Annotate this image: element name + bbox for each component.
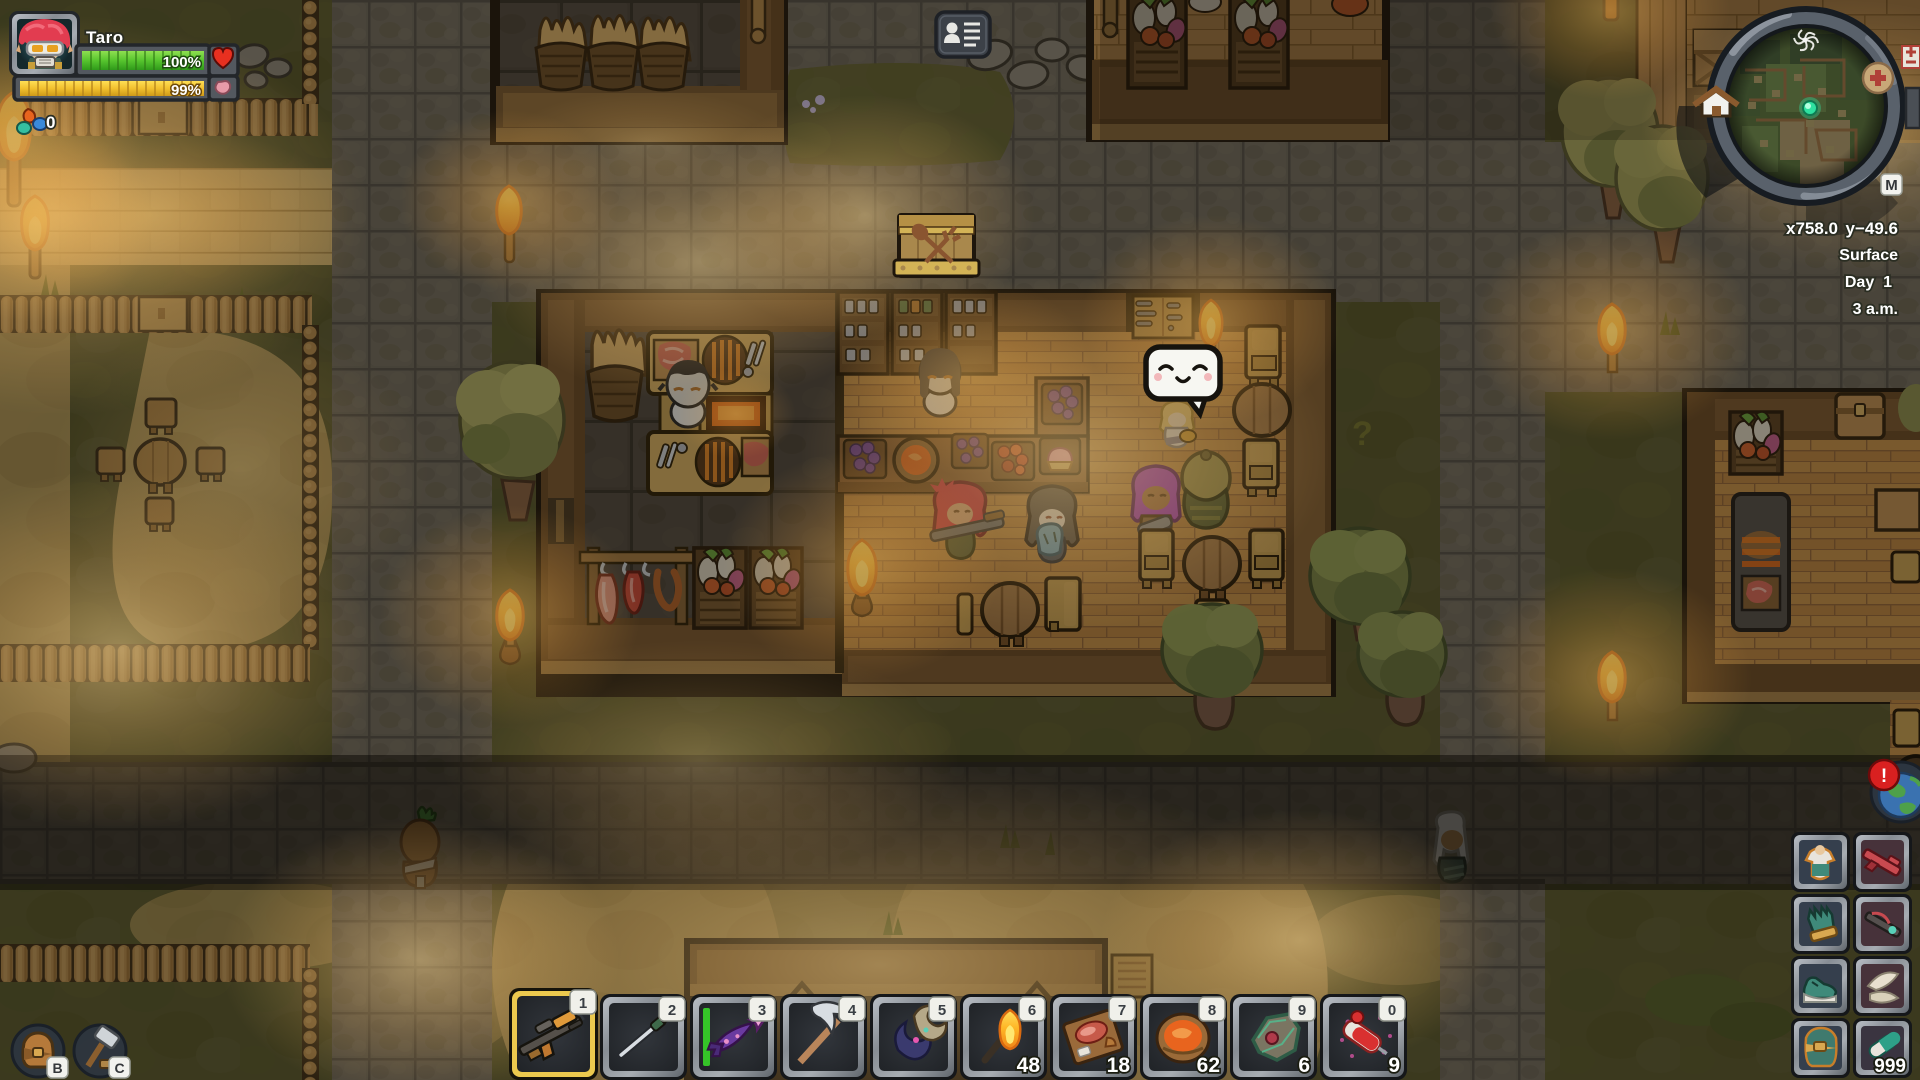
svg-text:6: 6 [1028,1002,1036,1019]
svg-text:8: 8 [1208,1002,1216,1019]
svg-text:M: M [1885,177,1898,194]
svg-text:7: 7 [1118,1002,1126,1019]
svg-text:!: ! [1881,766,1887,787]
svg-text:y−49.6: y−49.6 [1846,219,1898,238]
svg-text:0: 0 [46,113,55,132]
svg-text:99%: 99% [171,82,201,99]
svg-text:999: 999 [1874,1056,1906,1077]
svg-text:C: C [114,1060,124,1076]
svg-text:4: 4 [848,1002,857,1019]
svg-text:9: 9 [1298,1002,1306,1019]
svg-text:B: B [52,1060,62,1076]
svg-text:Day 1: Day 1 [1845,274,1892,291]
svg-text:100%: 100% [163,54,201,71]
svg-text:18: 18 [1107,1054,1131,1077]
svg-text:Surface: Surface [1839,247,1898,264]
svg-text:0: 0 [1388,1002,1396,1019]
svg-text:9: 9 [1388,1054,1400,1077]
svg-text:3 a.m.: 3 a.m. [1853,301,1898,318]
svg-text:48: 48 [1017,1054,1041,1077]
svg-text:1: 1 [579,995,587,1012]
svg-text:x758.0: x758.0 [1786,219,1838,238]
svg-text:5: 5 [938,1002,946,1019]
svg-text:62: 62 [1197,1054,1220,1077]
svg-text:3: 3 [758,1002,766,1019]
svg-text:2: 2 [668,1002,676,1019]
svg-text:6: 6 [1298,1054,1310,1077]
